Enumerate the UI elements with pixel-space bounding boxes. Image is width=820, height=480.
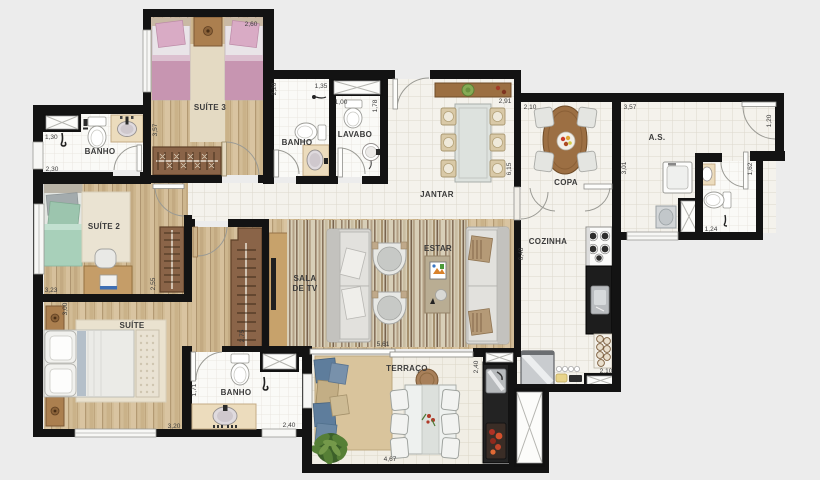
svg-text:2,91: 2,91 (499, 98, 512, 105)
svg-text:2,55: 2,55 (150, 277, 157, 290)
svg-text:SALA: SALA (294, 274, 317, 283)
svg-text:SUÍTE: SUÍTE (119, 321, 144, 330)
svg-text:BANHO: BANHO (85, 147, 116, 156)
svg-text:1,30: 1,30 (45, 134, 58, 141)
svg-text:6,15: 6,15 (506, 162, 513, 175)
svg-text:ESTAR: ESTAR (424, 244, 452, 253)
svg-text:2,10: 2,10 (524, 104, 537, 111)
svg-text:1,71: 1,71 (191, 383, 198, 396)
svg-text:1,00: 1,00 (335, 99, 348, 106)
svg-text:3,57: 3,57 (624, 104, 637, 111)
svg-text:4,67: 4,67 (384, 456, 397, 463)
svg-text:2,30: 2,30 (46, 166, 59, 173)
svg-text:1,62: 1,62 (747, 162, 754, 175)
svg-text:2,75: 2,75 (239, 329, 246, 342)
svg-text:2,40: 2,40 (473, 360, 480, 373)
svg-text:1,20: 1,20 (766, 114, 773, 127)
svg-text:A.S.: A.S. (649, 133, 666, 142)
svg-text:DE TV: DE TV (292, 284, 317, 293)
svg-text:3,20: 3,20 (168, 423, 181, 430)
svg-text:1,35: 1,35 (315, 83, 328, 90)
svg-text:3,00: 3,00 (62, 302, 69, 315)
svg-text:JANTAR: JANTAR (420, 190, 454, 199)
svg-text:5,61: 5,61 (377, 341, 390, 348)
svg-text:1,24: 1,24 (705, 226, 718, 233)
svg-text:BANHO: BANHO (282, 138, 313, 147)
svg-text:TERRAÇO: TERRAÇO (386, 364, 428, 373)
svg-text:1,78: 1,78 (372, 99, 379, 112)
svg-text:COZINHA: COZINHA (529, 237, 568, 246)
svg-text:COPA: COPA (554, 178, 578, 187)
svg-text:2,10: 2,10 (600, 368, 613, 375)
svg-text:SUÍTE 3: SUÍTE 3 (194, 103, 227, 112)
svg-text:2,40: 2,40 (283, 422, 296, 429)
svg-text:3,01: 3,01 (621, 161, 628, 174)
svg-text:LAVABO: LAVABO (338, 130, 372, 139)
svg-text:2,60: 2,60 (245, 21, 258, 28)
svg-text:2,20: 2,20 (271, 82, 278, 95)
svg-text:SUÍTE 2: SUÍTE 2 (88, 222, 121, 231)
svg-text:6,48: 6,48 (518, 247, 525, 260)
svg-text:3,23: 3,23 (45, 287, 58, 294)
svg-text:BANHO: BANHO (221, 388, 252, 397)
svg-text:3,57: 3,57 (152, 123, 159, 136)
